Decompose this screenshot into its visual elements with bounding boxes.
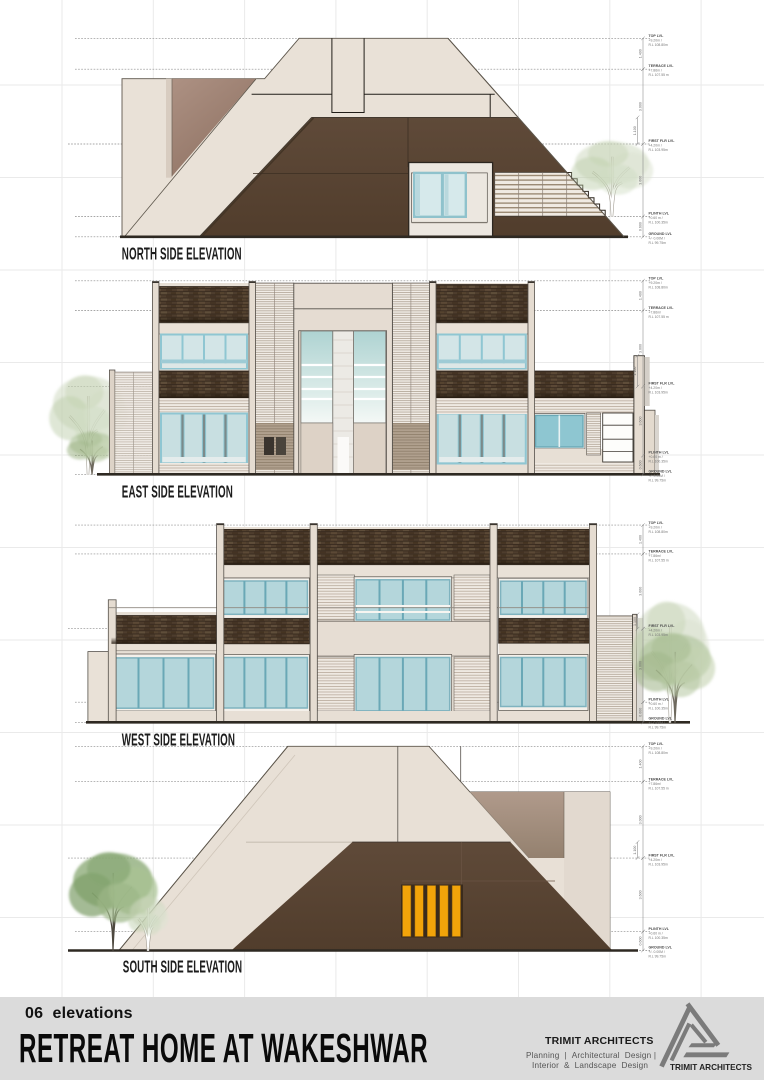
svg-text:PLINTH LVL: PLINTH LVL: [649, 212, 670, 216]
svg-text:1.100: 1.100: [633, 617, 637, 626]
svg-text:R.L 108.80m: R.L 108.80m: [649, 530, 668, 534]
svg-text:R.L 99.75m: R.L 99.75m: [649, 726, 667, 730]
svg-text:3.600: 3.600: [639, 417, 643, 426]
svg-text:3.600: 3.600: [639, 176, 643, 185]
svg-text:NORTH SIDE ELEVATION: NORTH SIDE ELEVATION: [122, 245, 242, 265]
svg-text:R.L 108.80m: R.L 108.80m: [649, 43, 668, 47]
svg-text:+/- 0.00M /: +/- 0.00M /: [649, 950, 665, 954]
svg-text:FIRST FLR LVL: FIRST FLR LVL: [649, 382, 676, 386]
svg-text:+0.60 m /: +0.60 m /: [649, 216, 663, 220]
svg-text:R.L 99.75m: R.L 99.75m: [649, 955, 667, 959]
svg-text:3.000: 3.000: [639, 587, 643, 596]
svg-text:RETREAT HOME AT WAKESHWAR: RETREAT HOME AT WAKESHWAR: [19, 1027, 428, 1072]
svg-text:TERRACE LVL: TERRACE LVL: [649, 550, 675, 554]
svg-text:1.400: 1.400: [639, 49, 643, 58]
svg-text:1.100: 1.100: [633, 846, 637, 855]
svg-text:3.000: 3.000: [639, 815, 643, 824]
svg-text:R.L 108.80m: R.L 108.80m: [649, 286, 668, 290]
svg-text:1.400: 1.400: [639, 291, 643, 300]
svg-text:TERRACE LVL: TERRACE LVL: [649, 64, 675, 68]
svg-text:R.L 107.55 m: R.L 107.55 m: [649, 73, 669, 77]
svg-text:R.L 103.95m: R.L 103.95m: [649, 391, 668, 395]
svg-text:+9.20m /: +9.20m /: [649, 281, 662, 285]
svg-text:R.L 99.75m: R.L 99.75m: [649, 241, 667, 245]
svg-text:+/- 0.00M /: +/- 0.00M /: [649, 721, 665, 725]
svg-text:GROUND LVL: GROUND LVL: [649, 717, 673, 721]
svg-text:+/- 0.00M /: +/- 0.00M /: [649, 237, 665, 241]
svg-text:TERRACE LVL: TERRACE LVL: [649, 778, 675, 782]
svg-text:R.L 108.80m: R.L 108.80m: [649, 751, 668, 755]
svg-text:TOP LVL: TOP LVL: [649, 521, 665, 525]
svg-text:GROUND LVL: GROUND LVL: [649, 946, 673, 950]
svg-text:TERRACE LVL: TERRACE LVL: [649, 306, 675, 310]
svg-text:Planning | Architectural De: Planning | Architectural Design |: [526, 1051, 656, 1060]
svg-text:WEST SIDE ELEVATION: WEST SIDE ELEVATION: [122, 731, 235, 751]
svg-text:+/- 0.00M /: +/- 0.00M /: [649, 474, 665, 478]
svg-text:R.L 100.35m: R.L 100.35m: [649, 707, 668, 711]
svg-text:R.L 107.55 m: R.L 107.55 m: [649, 787, 669, 791]
svg-text:1.100: 1.100: [633, 126, 637, 135]
svg-text:R.L 103.95m: R.L 103.95m: [649, 148, 668, 152]
svg-text:PLINTH LVL: PLINTH LVL: [649, 927, 670, 931]
svg-text:1.400: 1.400: [639, 760, 643, 769]
svg-text:R.L 107.55 m: R.L 107.55 m: [649, 315, 669, 319]
svg-text:06 elevations: 06 elevations: [25, 1005, 133, 1022]
svg-text:R.L 103.95m: R.L 103.95m: [649, 863, 668, 867]
svg-text:1.400: 1.400: [639, 535, 643, 544]
svg-text:R.L 100.35m: R.L 100.35m: [649, 221, 668, 225]
svg-text:3.000: 3.000: [639, 344, 643, 353]
svg-text:0.600: 0.600: [639, 937, 643, 946]
svg-text:PLINTH LVL: PLINTH LVL: [649, 698, 670, 702]
svg-text:+9.20m /: +9.20m /: [649, 747, 662, 751]
svg-text:R.L 100.35m: R.L 100.35m: [649, 460, 668, 464]
svg-text:+7.86m/: +7.86m/: [649, 554, 661, 558]
svg-text:TRIMIT ARCHITECTS: TRIMIT ARCHITECTS: [545, 1035, 654, 1047]
svg-text:+0.60 m /: +0.60 m /: [649, 455, 663, 459]
svg-text:Interior & Landscape Design: Interior & Landscape Design: [532, 1061, 648, 1070]
svg-text:GROUND LVL: GROUND LVL: [649, 232, 673, 236]
svg-text:R.L 99.75m: R.L 99.75m: [649, 479, 667, 483]
svg-text:R.L 103.95m: R.L 103.95m: [649, 633, 668, 637]
svg-text:+4.20m /: +4.20m /: [649, 144, 662, 148]
svg-text:+7.86m /: +7.86m /: [649, 69, 662, 73]
svg-text:+7.86m/: +7.86m/: [649, 311, 661, 315]
svg-text:FIRST FLR LVL: FIRST FLR LVL: [649, 854, 676, 858]
svg-text:3.000: 3.000: [639, 102, 643, 111]
svg-text:3.600: 3.600: [639, 890, 643, 899]
svg-text:EAST SIDE ELEVATION: EAST SIDE ELEVATION: [122, 483, 233, 503]
svg-text:FIRST FLR LVL: FIRST FLR LVL: [649, 139, 676, 143]
svg-text:TOP LVL: TOP LVL: [649, 742, 665, 746]
svg-text:+9.20m /: +9.20m /: [649, 39, 662, 43]
svg-text:GROUND LVL: GROUND LVL: [649, 470, 673, 474]
svg-text:+4.20m /: +4.20m /: [649, 858, 662, 862]
svg-text:+0.60 m /: +0.60 m /: [649, 702, 663, 706]
svg-text:3.600: 3.600: [639, 661, 643, 670]
svg-text:TOP LVL: TOP LVL: [649, 34, 665, 38]
svg-text:R.L 107.55 m: R.L 107.55 m: [649, 559, 669, 563]
svg-text:+0.60 m /: +0.60 m /: [649, 932, 663, 936]
svg-text:FIRST FLR LVL: FIRST FLR LVL: [649, 624, 676, 628]
svg-text:+7.86m/: +7.86m/: [649, 782, 661, 786]
svg-text:0.600: 0.600: [639, 708, 643, 717]
svg-text:SOUTH SIDE ELEVATION: SOUTH SIDE ELEVATION: [123, 958, 242, 978]
svg-text:R.L 100.35m: R.L 100.35m: [649, 936, 668, 940]
svg-text:TOP LVL: TOP LVL: [649, 277, 665, 281]
svg-text:0.600: 0.600: [639, 460, 643, 469]
svg-text:1.100: 1.100: [633, 367, 637, 376]
svg-text:0.600: 0.600: [639, 222, 643, 231]
svg-text:+9.20m /: +9.20m /: [649, 526, 662, 530]
svg-text:TRIMIT ARCHITECTS: TRIMIT ARCHITECTS: [670, 1063, 753, 1072]
svg-text:+4.20m /: +4.20m /: [649, 629, 662, 633]
svg-text:+4.20m /: +4.20m /: [649, 386, 662, 390]
svg-text:PLINTH LVL: PLINTH LVL: [649, 451, 670, 455]
